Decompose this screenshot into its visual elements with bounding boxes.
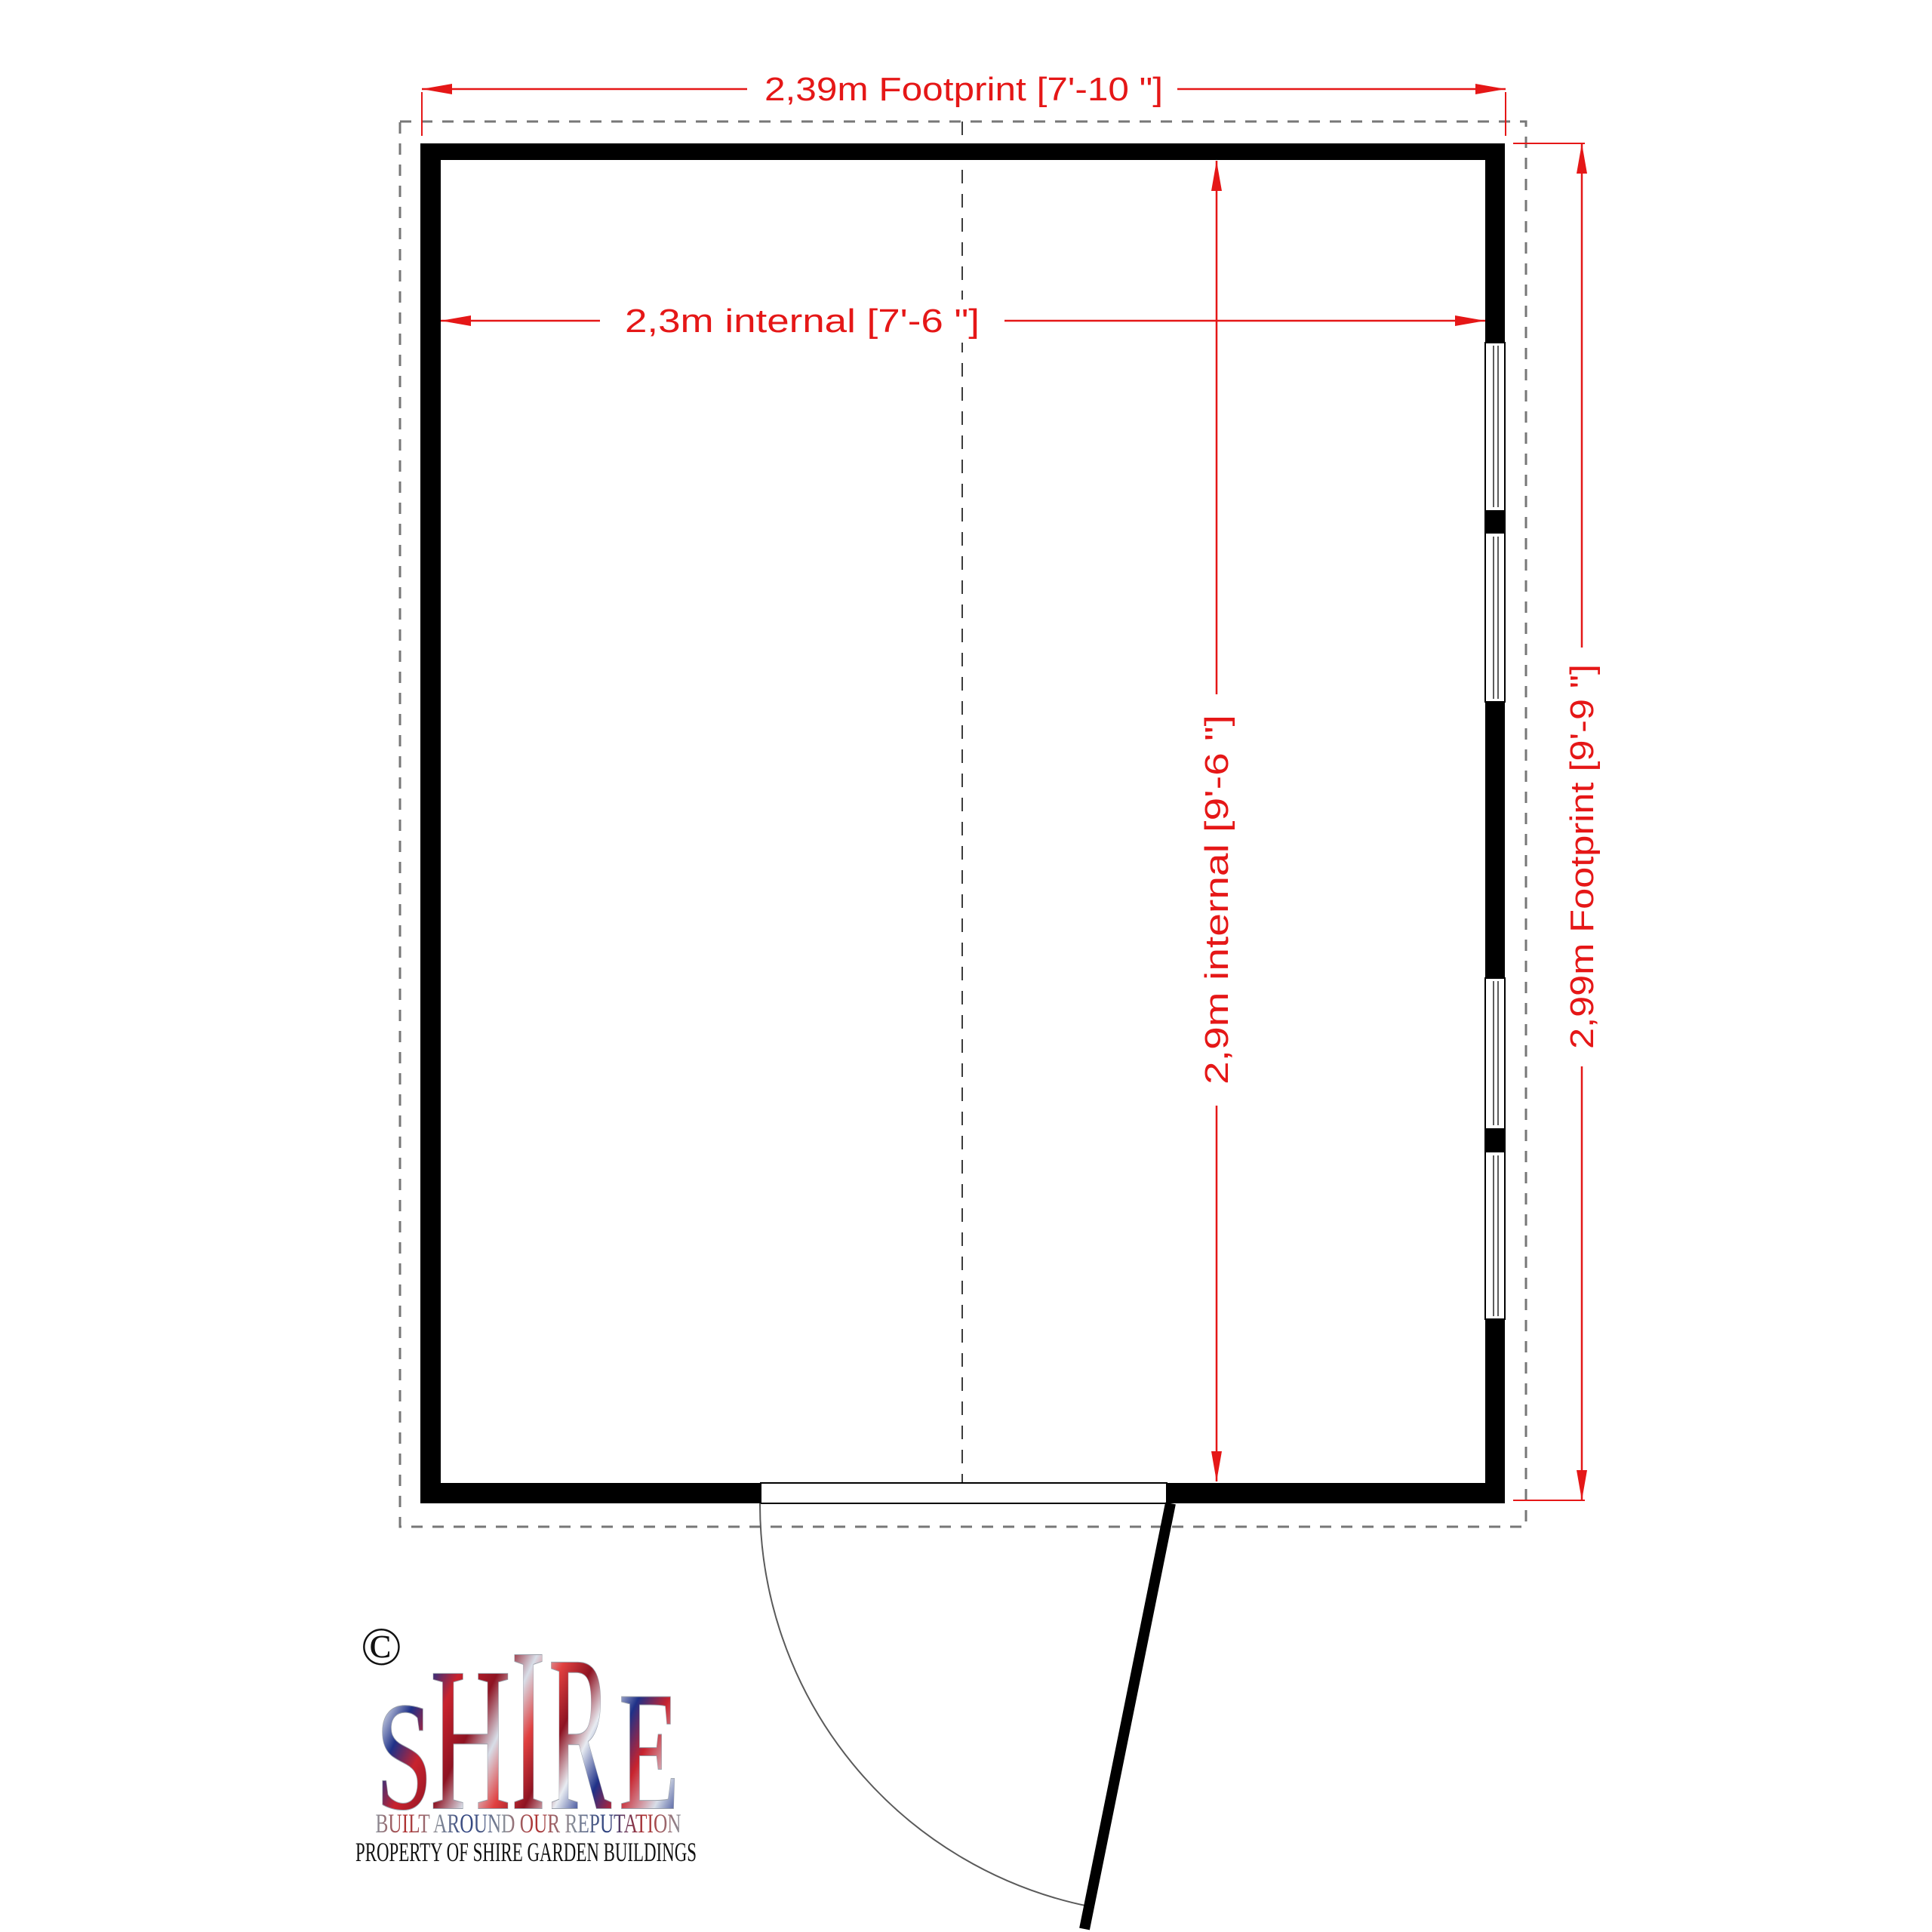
arrowhead-up-icon bbox=[1577, 143, 1587, 174]
floor-plan-page: 2,39m Footprint [7'-10 "] 2,3m internal … bbox=[0, 0, 1932, 1932]
arrowhead-right-icon bbox=[1475, 84, 1506, 94]
window-lower bbox=[1485, 978, 1505, 1319]
door bbox=[760, 1483, 1171, 1929]
shire-logo: © S H I R E BUILT AROUND OUR REPUTATION … bbox=[355, 1601, 697, 1867]
dimension-internal-depth: 2,9m internal [9'-6 "] bbox=[1195, 161, 1238, 1481]
internal-depth-label: 2,9m internal [9'-6 "] bbox=[1198, 715, 1235, 1084]
door-swing-arc bbox=[760, 1503, 1089, 1906]
arrowhead-left-icon bbox=[441, 315, 471, 326]
footprint-width-label: 2,39m Footprint [7'-10 "] bbox=[764, 71, 1163, 108]
footprint-depth-label: 2,99m Footprint [9'-9 "] bbox=[1564, 664, 1601, 1049]
door-leaf bbox=[1084, 1503, 1171, 1929]
internal-width-label: 2,3m internal [7'-6 "] bbox=[625, 303, 980, 340]
property-line: PROPERTY OF SHIRE GARDEN BUILDINGS bbox=[355, 1837, 697, 1867]
arrowhead-down-icon bbox=[1577, 1470, 1587, 1500]
wall-top bbox=[420, 143, 1505, 160]
wall-bottom-right bbox=[1167, 1483, 1505, 1503]
window-upper-mullion bbox=[1485, 510, 1505, 534]
door-threshold bbox=[761, 1483, 1167, 1503]
wall-left bbox=[420, 143, 441, 1503]
floor-plan-canvas: 2,39m Footprint [7'-10 "] 2,3m internal … bbox=[0, 0, 1932, 1932]
copyright-icon: © bbox=[361, 1617, 402, 1677]
dimension-internal-width: 2,3m internal [7'-6 "] bbox=[441, 300, 1485, 343]
wall-right-upper bbox=[1485, 143, 1505, 343]
arrowhead-right-icon bbox=[1455, 315, 1485, 326]
window-upper bbox=[1485, 343, 1505, 702]
arrowhead-down-icon bbox=[1211, 1451, 1222, 1481]
brand-tagline: BUILT AROUND OUR REPUTATION bbox=[376, 1808, 681, 1838]
arrowhead-left-icon bbox=[422, 84, 452, 94]
arrowhead-up-icon bbox=[1211, 161, 1222, 191]
wall-right-lower bbox=[1485, 1319, 1505, 1503]
wall-right-middle bbox=[1485, 702, 1505, 978]
window-lower-mullion bbox=[1485, 1128, 1505, 1152]
wall-bottom-left bbox=[420, 1483, 761, 1503]
dimension-footprint-width: 2,39m Footprint [7'-10 "] bbox=[422, 68, 1506, 136]
